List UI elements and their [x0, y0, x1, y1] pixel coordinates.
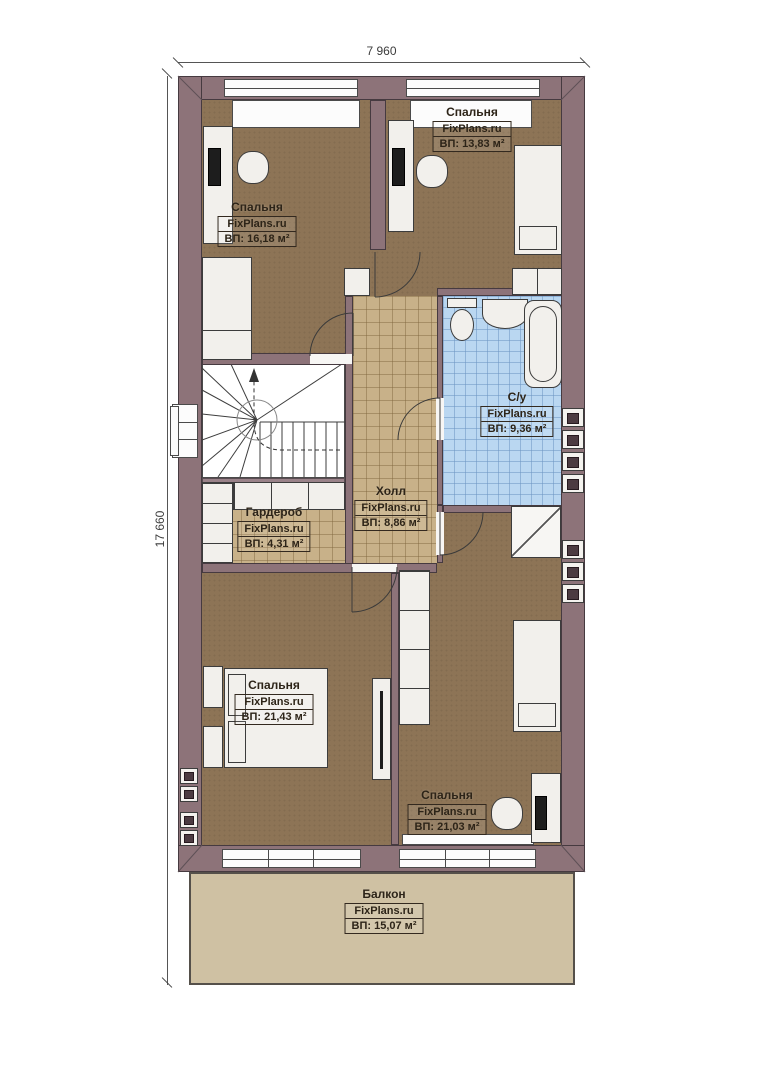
bed [514, 145, 562, 255]
corridor-floor [370, 250, 437, 296]
room-label-hall: Холл FixPlans.ru ВП: 8,86 м² [354, 484, 427, 531]
vent-block [180, 812, 198, 828]
left-dimension-line [167, 76, 168, 985]
window-top-right [406, 79, 540, 97]
vent-block [562, 562, 584, 581]
stairs-outline [203, 363, 345, 478]
vent-block [562, 452, 584, 471]
wall-hall-left [345, 296, 353, 570]
watermark: FixPlans.ru [409, 805, 486, 819]
room-name: С/у [480, 390, 553, 404]
vent-block [562, 474, 584, 493]
room-area: ВП: 21,03 м² [409, 819, 486, 834]
window-sill-niche [402, 834, 534, 845]
wall-bottom-bedrooms [391, 573, 399, 845]
tv-stand [372, 678, 391, 780]
room-area: ВП: 4,31 м² [238, 536, 309, 551]
room-name: Спальня [408, 788, 487, 802]
balcony-door-left [222, 849, 361, 868]
room-name: Спальня [433, 105, 512, 119]
room-label-bedroom-bl: Спальня FixPlans.ru ВП: 21,43 м² [235, 678, 314, 725]
top-dimension-line [178, 62, 585, 63]
room-label-bedroom-tl: Спальня FixPlans.ru ВП: 16,18 м² [218, 200, 297, 247]
monitor [392, 148, 405, 186]
floor-plan: 7 960 17 660 [0, 0, 763, 1080]
nightstand [203, 666, 223, 708]
room-label-wardrobe: Гардероб FixPlans.ru ВП: 4,31 м² [237, 505, 310, 552]
room-label-bedroom-tr: Спальня FixPlans.ru ВП: 13,83 м² [433, 105, 512, 152]
window-sill-niche [232, 100, 360, 128]
door-opening [436, 512, 444, 555]
watermark: FixPlans.ru [238, 522, 309, 536]
vent-block [562, 540, 584, 559]
room-name: Балкон [345, 887, 424, 901]
wall-exterior-left [178, 76, 202, 872]
room-area: ВП: 15,07 м² [346, 918, 423, 933]
cabinet [512, 268, 562, 295]
vent-block [180, 830, 198, 846]
vent-block [562, 408, 584, 427]
watermark: FixPlans.ru [346, 904, 423, 918]
top-dimension-label: 7 960 [339, 44, 424, 58]
watermark: FixPlans.ru [481, 407, 552, 421]
vent-block [180, 786, 198, 802]
room-area: ВП: 9,36 м² [481, 421, 552, 436]
nightstand [203, 726, 223, 768]
bed [513, 620, 561, 732]
toilet-tank [447, 298, 477, 308]
room-name: Холл [354, 484, 427, 498]
room-label-balcony: Балкон FixPlans.ru ВП: 15,07 м² [345, 887, 424, 934]
watermark: FixPlans.ru [355, 501, 426, 515]
chair [491, 797, 523, 830]
room-name: Спальня [218, 200, 297, 214]
room-area: ВП: 16,18 м² [219, 231, 296, 246]
toilet [450, 309, 474, 341]
door-opening [352, 564, 397, 572]
staircase [202, 362, 345, 478]
shower [511, 506, 561, 558]
door-opening [436, 398, 444, 440]
room-area: ВП: 21,43 м² [236, 709, 313, 724]
wall-top-bedrooms [370, 100, 386, 250]
chair [237, 151, 269, 184]
left-dimension-label: 17 660 [153, 487, 167, 571]
watermark: FixPlans.ru [219, 217, 296, 231]
vent-block [562, 430, 584, 449]
chair [416, 155, 448, 188]
room-area: ВП: 8,86 м² [355, 515, 426, 530]
monitor [208, 148, 221, 186]
monitor [535, 796, 547, 830]
vent-block [562, 584, 584, 603]
room-name: Спальня [235, 678, 314, 692]
window-top-left [224, 79, 358, 97]
wardrobe-shelves-left [202, 482, 233, 563]
door-opening [310, 354, 352, 364]
bathtub [524, 300, 562, 388]
room-area: ВП: 13,83 м² [434, 136, 511, 151]
sink [482, 299, 528, 329]
room-label-bathroom: С/у FixPlans.ru ВП: 9,36 м² [480, 390, 553, 437]
room-name: Гардероб [237, 505, 310, 519]
room-label-bedroom-br: Спальня FixPlans.ru ВП: 21,03 м² [408, 788, 487, 835]
window-sill-exterior [170, 406, 179, 456]
nightstand [344, 268, 370, 296]
balcony-door-right [399, 849, 536, 868]
watermark: FixPlans.ru [434, 122, 511, 136]
wardrobe-cabinet [399, 570, 430, 725]
watermark: FixPlans.ru [236, 695, 313, 709]
bed [202, 257, 252, 360]
vent-block [180, 768, 198, 784]
